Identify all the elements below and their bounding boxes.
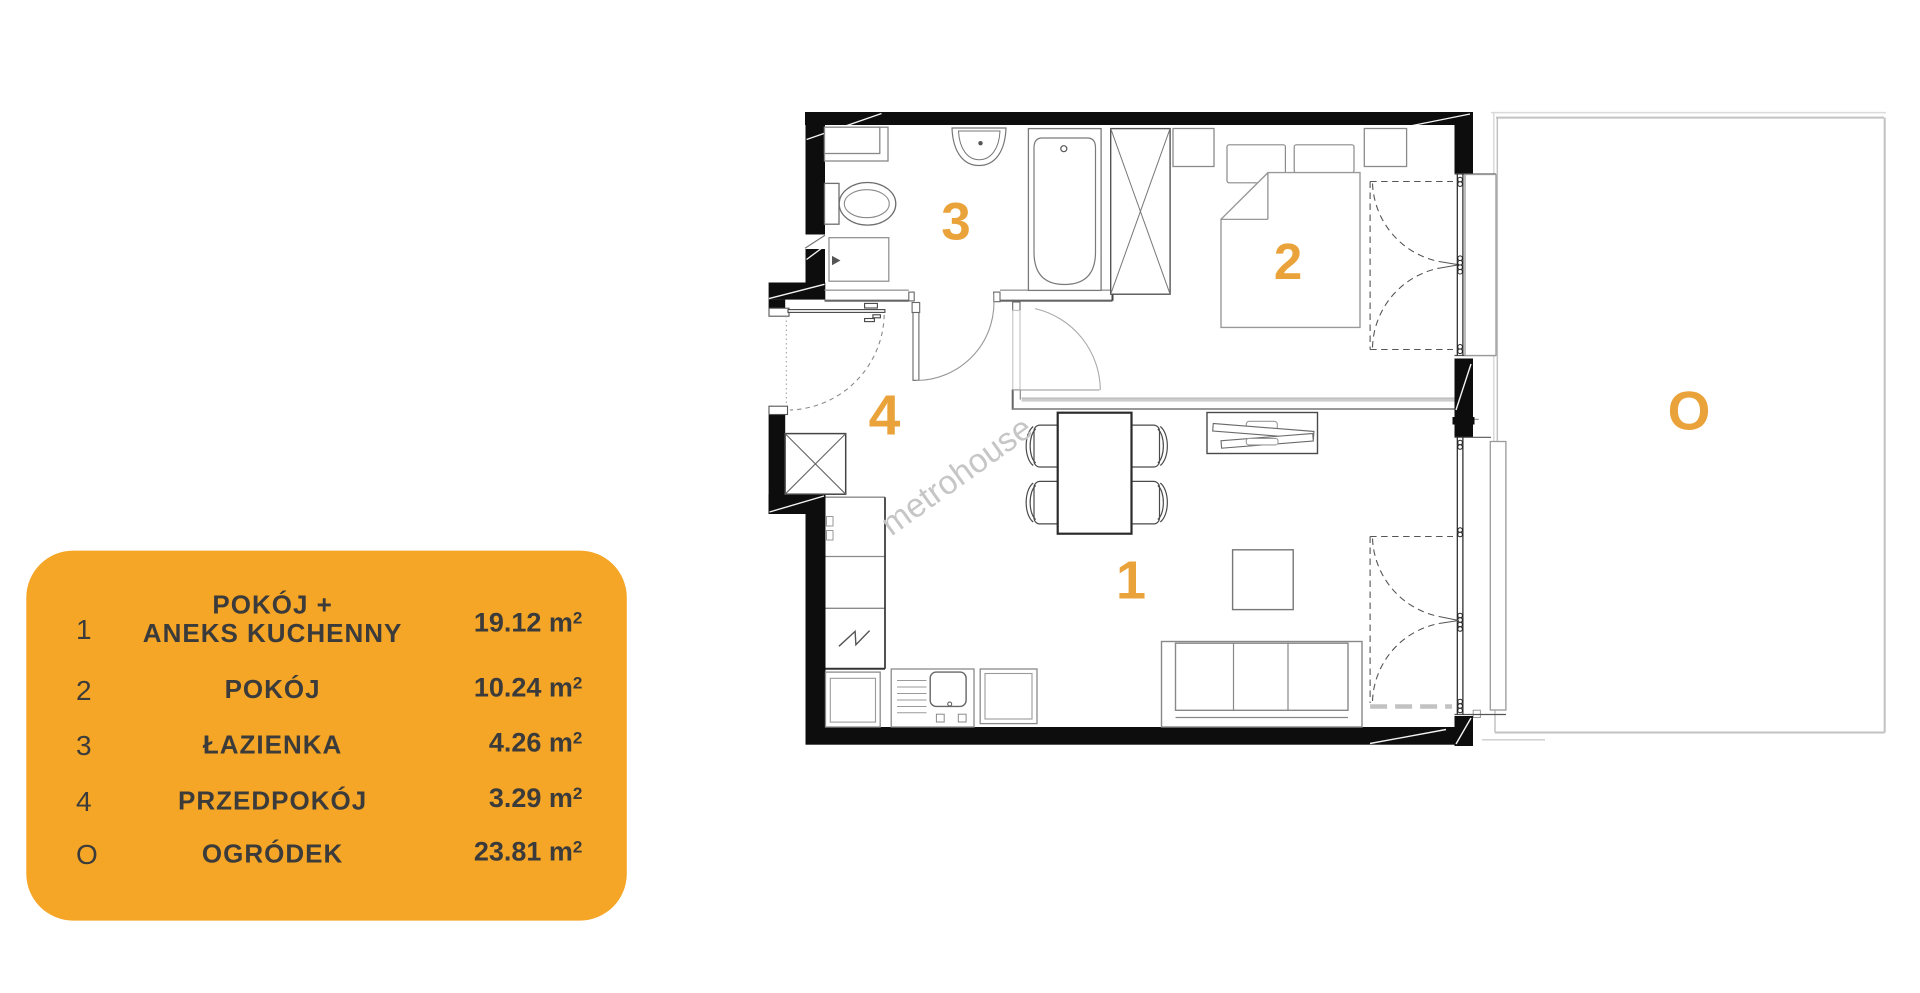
svg-text:19.12 m2: 19.12 m2 xyxy=(474,608,583,638)
svg-text:23.81 m2: 23.81 m2 xyxy=(474,837,583,867)
svg-text:4.26 m2: 4.26 m2 xyxy=(489,728,583,758)
svg-text:4: 4 xyxy=(869,384,901,448)
svg-text:POKÓJ: POKÓJ xyxy=(225,674,321,704)
svg-text:O: O xyxy=(76,839,98,870)
svg-text:PRZEDPOKÓJ: PRZEDPOKÓJ xyxy=(178,786,367,816)
svg-text:4: 4 xyxy=(76,786,92,817)
svg-text:ANEKS KUCHENNY: ANEKS KUCHENNY xyxy=(143,618,403,648)
svg-text:2: 2 xyxy=(76,675,92,706)
svg-text:3: 3 xyxy=(941,193,970,252)
svg-text:OGRÓDEK: OGRÓDEK xyxy=(202,839,343,869)
svg-text:ŁAZIENKA: ŁAZIENKA xyxy=(203,730,342,760)
svg-text:O: O xyxy=(1668,380,1711,442)
svg-text:3.29 m2: 3.29 m2 xyxy=(489,783,583,813)
svg-text:1: 1 xyxy=(76,614,92,645)
svg-text:2: 2 xyxy=(1274,233,1302,290)
svg-text:10.24 m2: 10.24 m2 xyxy=(474,673,583,703)
svg-text:1: 1 xyxy=(1116,551,1146,611)
svg-text:POKÓJ +: POKÓJ + xyxy=(212,590,332,620)
svg-text:3: 3 xyxy=(76,730,92,761)
